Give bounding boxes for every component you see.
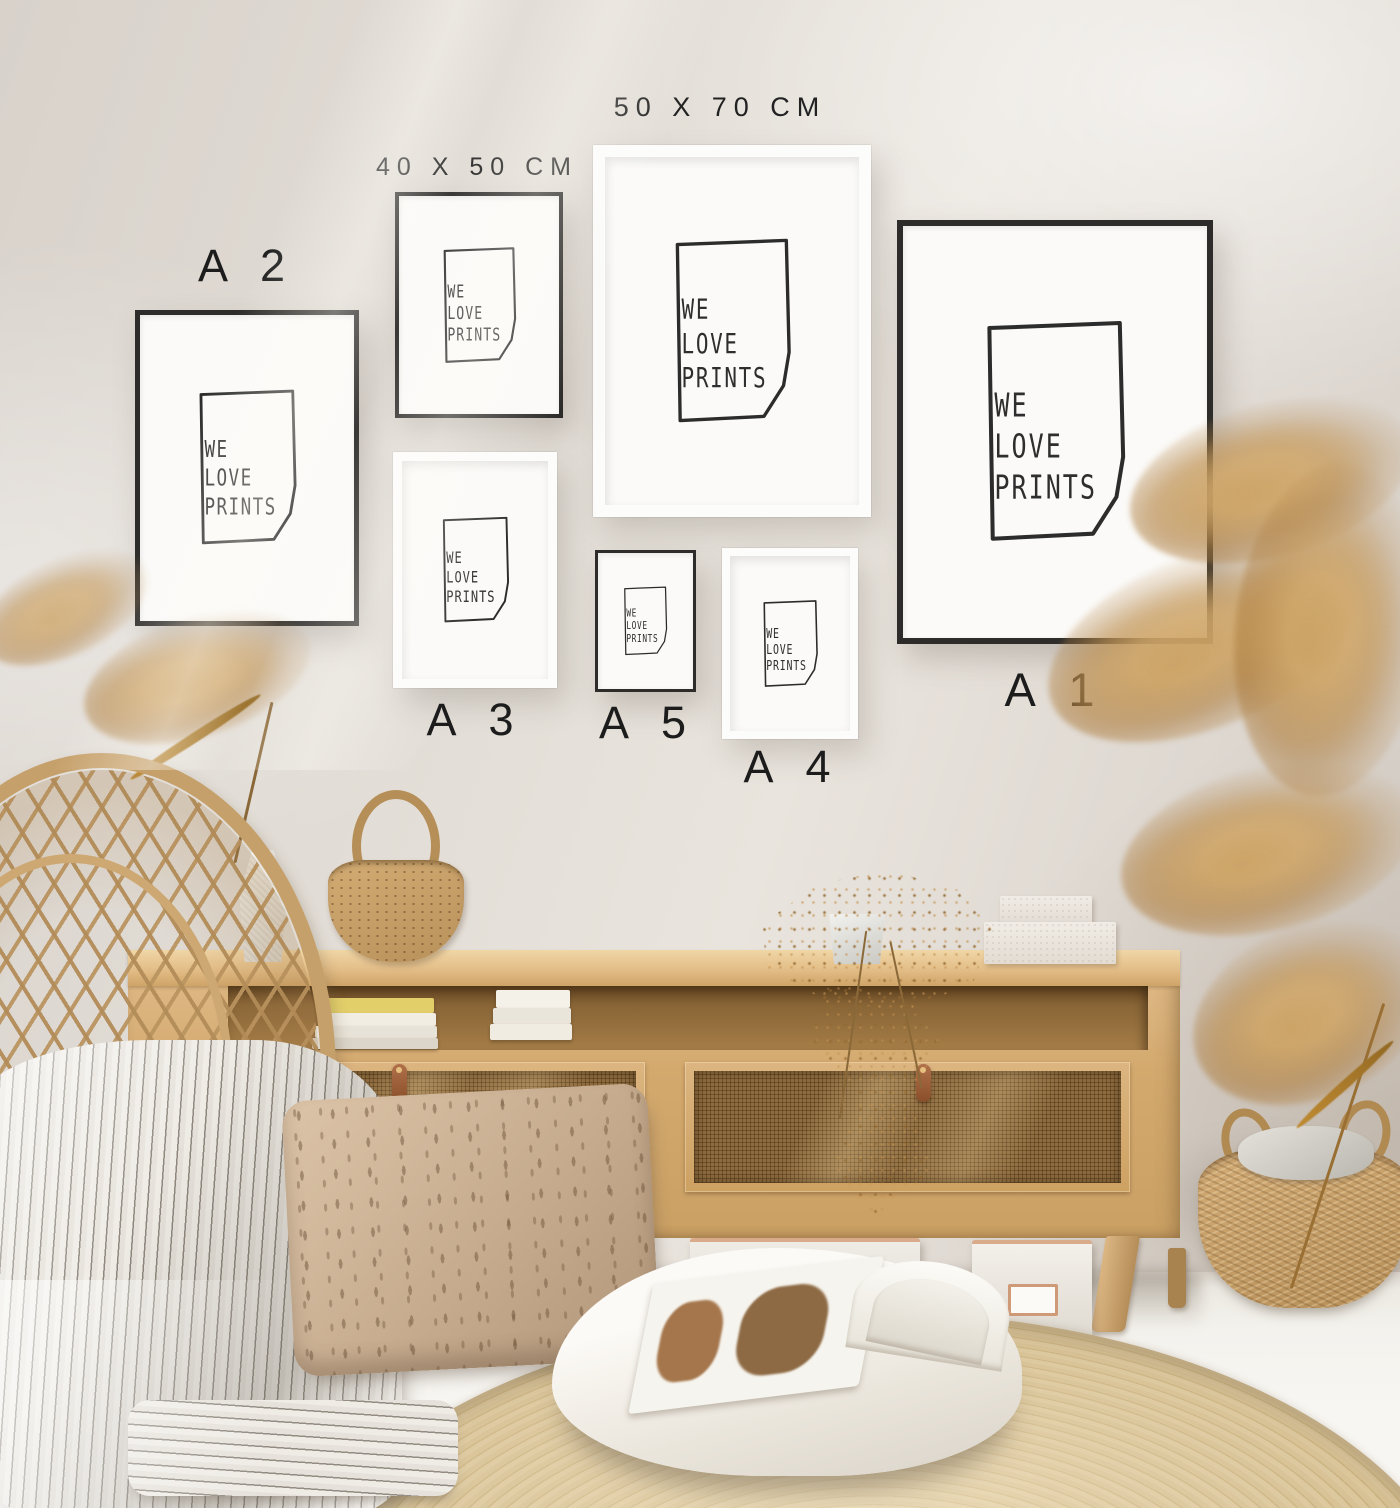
we-love-prints-artwork: WELOVEPRINTS (971, 313, 1138, 550)
frame-50x70cm: WELOVEPRINTS (593, 145, 871, 517)
svg-text:PRINTS: PRINTS (995, 468, 1098, 506)
svg-text:PRINTS: PRINTS (205, 494, 277, 521)
svg-text:LOVE: LOVE (995, 427, 1063, 465)
frame-a5: WELOVEPRINTS (595, 550, 696, 692)
svg-text:LOVE: LOVE (766, 641, 793, 657)
svg-text:WE: WE (205, 436, 229, 463)
folded-cloth (1238, 1126, 1374, 1180)
room-scene: 50 X 70 CM WELOVEPRINTS 40 X 50 CM WELOV… (0, 0, 1400, 1508)
we-love-prints-artwork: WELOVEPRINTS (188, 384, 306, 551)
patterned-box-small (1000, 896, 1092, 924)
frame-40x50cm: WELOVEPRINTS (395, 192, 563, 418)
patterned-box-large (984, 922, 1116, 964)
svg-text:WE: WE (995, 387, 1029, 425)
label-50x70cm: 50 X 70 CM (545, 92, 895, 123)
svg-text:PRINTS: PRINTS (446, 588, 495, 606)
svg-text:WE: WE (766, 625, 779, 641)
svg-text:WE: WE (627, 607, 638, 619)
we-love-prints-artwork: WELOVEPRINTS (757, 597, 823, 691)
book (318, 1013, 436, 1026)
svg-text:LOVE: LOVE (205, 465, 253, 492)
we-love-prints-artwork: WELOVEPRINTS (435, 513, 515, 627)
book (490, 1024, 572, 1040)
book (493, 1008, 571, 1024)
label-40x50cm: 40 X 50 CM (352, 153, 602, 182)
svg-text:LOVE: LOVE (627, 620, 648, 632)
label-a3: A 3 (378, 694, 573, 746)
svg-text:WE: WE (447, 281, 465, 301)
label-a2: A 2 (135, 240, 359, 292)
svg-text:PRINTS: PRINTS (682, 361, 768, 394)
svg-text:WE: WE (446, 549, 462, 567)
frame-a3: WELOVEPRINTS (393, 452, 557, 688)
svg-text:PRINTS: PRINTS (627, 633, 659, 645)
svg-text:PRINTS: PRINTS (447, 324, 501, 344)
magazine-photo (651, 1297, 728, 1385)
woven-basket (328, 860, 464, 962)
label-a4: A 4 (705, 741, 880, 793)
blanket-fold (128, 1400, 458, 1496)
we-love-prints-artwork: WELOVEPRINTS (662, 232, 802, 430)
svg-text:WE: WE (682, 293, 711, 326)
frame-a4: WELOVEPRINTS (722, 548, 858, 739)
svg-text:LOVE: LOVE (446, 569, 479, 587)
svg-text:LOVE: LOVE (682, 327, 739, 360)
frame-a2: WELOVEPRINTS (135, 310, 359, 626)
label-holder (1008, 1284, 1058, 1316)
book (322, 998, 434, 1013)
sideboard-leg-back (1168, 1248, 1186, 1308)
magazine-photo (730, 1280, 835, 1379)
we-love-prints-artwork: WELOVEPRINTS (435, 243, 523, 368)
book (496, 990, 570, 1008)
we-love-prints-artwork: WELOVEPRINTS (619, 584, 671, 658)
svg-text:LOVE: LOVE (447, 303, 483, 323)
svg-text:PRINTS: PRINTS (766, 657, 806, 673)
